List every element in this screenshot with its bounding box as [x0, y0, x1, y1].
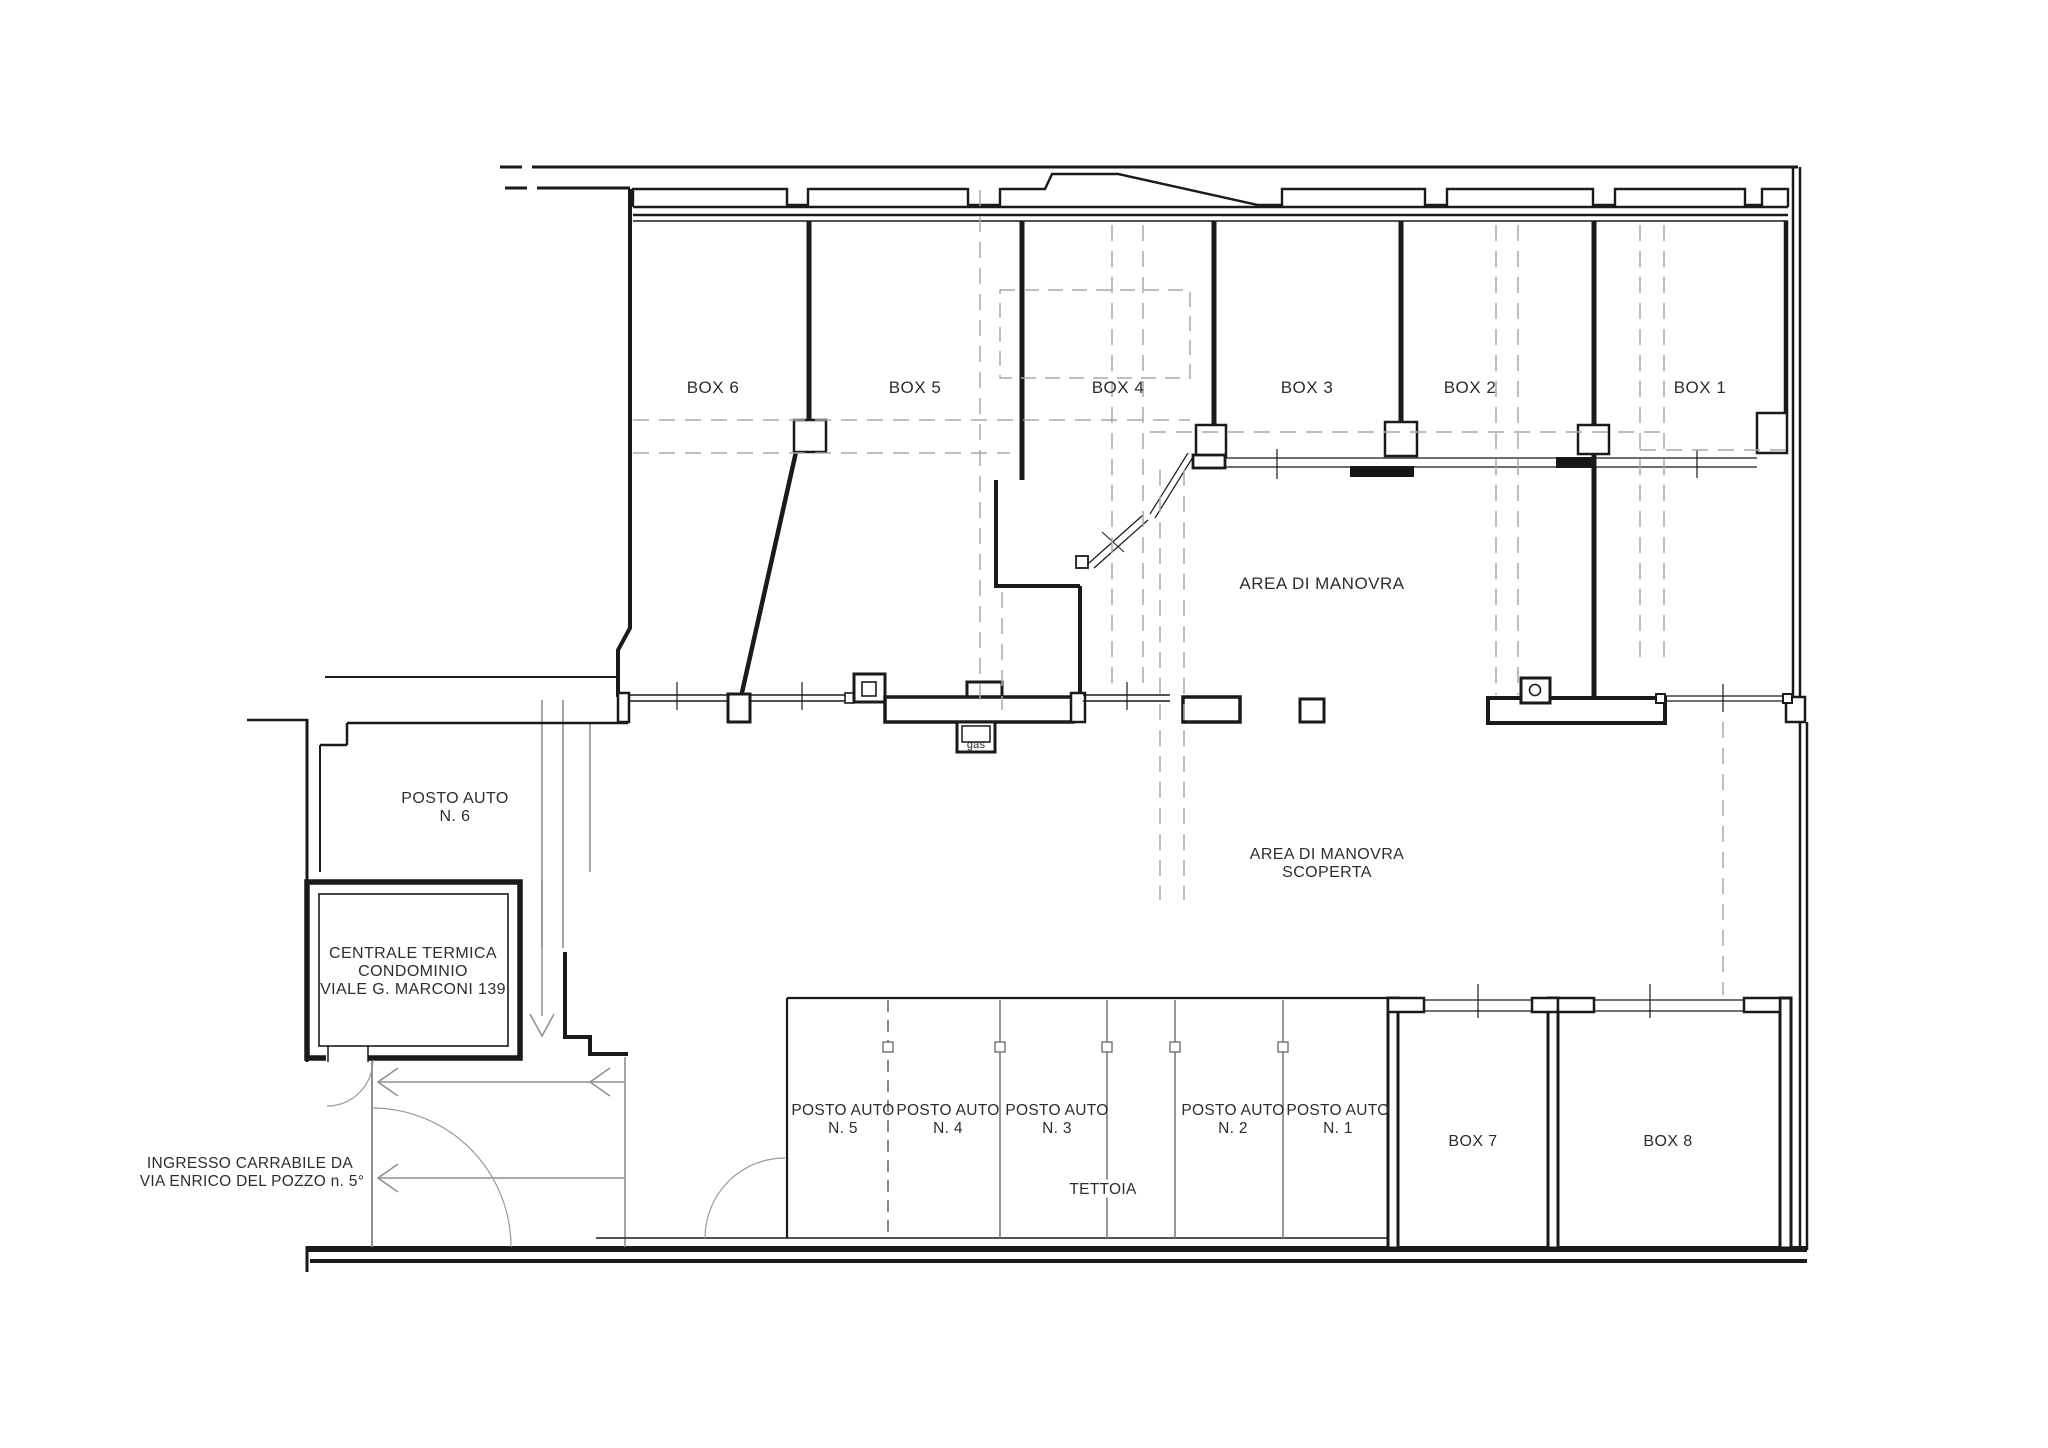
gas-label: gas — [967, 739, 986, 751]
centrale-termica-line1: CENTRALE TERMICA — [329, 945, 497, 962]
stall-4-line1: POSTO AUTO — [896, 1102, 999, 1119]
stall-1-line1: POSTO AUTO — [1286, 1102, 1389, 1119]
column — [1521, 678, 1550, 703]
area-manovra-scoperta-line1: AREA DI MANOVRA — [1250, 846, 1404, 863]
box-7-label: BOX 7 — [1448, 1133, 1497, 1150]
posto-auto-6-line1: POSTO AUTO — [401, 790, 508, 807]
floor-plan-drawing: BOX 6 BOX 5 BOX 4 BOX 3 BOX 2 BOX 1 AREA… — [0, 0, 2048, 1448]
centrale-door-opening — [326, 1050, 368, 1064]
stall-5-line2: N. 5 — [828, 1120, 858, 1137]
centrale-termica-line3: VIALE G. MARCONI 139 — [320, 981, 506, 998]
tettoia-label: TETTOIA — [1069, 1181, 1137, 1198]
area-di-manovra-label: AREA DI MANOVRA — [1239, 574, 1404, 593]
stall-2-line2: N. 2 — [1218, 1120, 1248, 1137]
area-manovra-scoperta-line2: SCOPERTA — [1282, 864, 1372, 881]
floor-plan-page: BOX 6 BOX 5 BOX 4 BOX 3 BOX 2 BOX 1 AREA… — [0, 0, 2048, 1448]
box-3-label: BOX 3 — [1281, 378, 1334, 397]
centrale-termica-line2: CONDOMINIO — [358, 963, 468, 980]
box-4-label: BOX 4 — [1092, 378, 1145, 397]
box-6-label: BOX 6 — [687, 378, 740, 397]
box-2-label: BOX 2 — [1444, 378, 1497, 397]
ingresso-line1: INGRESSO CARRABILE DA — [147, 1155, 353, 1172]
box-1-label: BOX 1 — [1674, 378, 1727, 397]
stall-5-line1: POSTO AUTO — [791, 1102, 894, 1119]
pillar — [1300, 699, 1324, 722]
stall-1-line2: N. 1 — [1323, 1120, 1353, 1137]
stall-3-line1: POSTO AUTO — [1005, 1102, 1108, 1119]
box-8-label: BOX 8 — [1643, 1133, 1692, 1150]
stall-2-line1: POSTO AUTO — [1181, 1102, 1284, 1119]
box-5-label: BOX 5 — [889, 378, 942, 397]
posto-auto-6-line2: N. 6 — [440, 808, 471, 825]
stall-3-line2: N. 3 — [1042, 1120, 1072, 1137]
ingresso-line2: VIA ENRICO DEL POZZO n. 5° — [140, 1173, 364, 1190]
stall-4-line2: N. 4 — [933, 1120, 963, 1137]
